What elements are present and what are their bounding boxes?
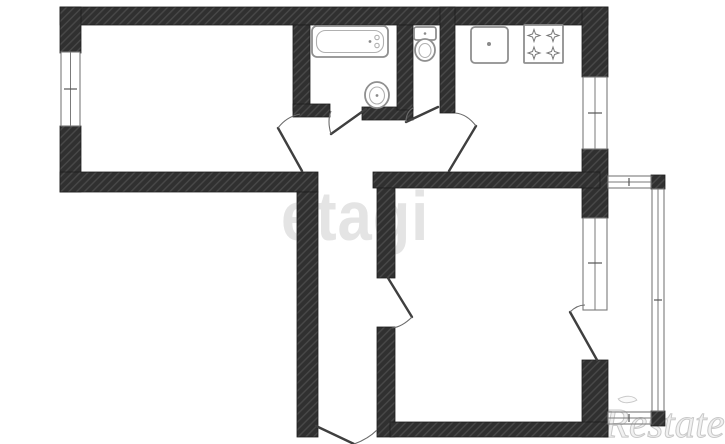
toilet-icon xyxy=(414,27,436,61)
wall-left-upper xyxy=(60,7,81,53)
door-bedroom xyxy=(388,278,412,328)
wall-wc-kitchen-divider xyxy=(440,7,455,113)
window-kitchen xyxy=(583,77,607,149)
window-bedroom xyxy=(583,218,607,310)
door-balcony xyxy=(570,305,597,360)
wall-bedroom-left-lower xyxy=(377,327,395,437)
door-living-room xyxy=(278,114,302,171)
watermark-restate-text: Restate xyxy=(604,400,725,444)
wall-bedroom-bottom xyxy=(390,422,608,437)
balcony-post-top xyxy=(651,175,665,189)
watermark-etagi: etagi xyxy=(281,176,429,256)
door-entrance xyxy=(316,426,377,444)
door-bathroom xyxy=(329,109,366,134)
window-living-room xyxy=(61,52,80,126)
floorplan-canvas: etagi Restate xyxy=(0,0,725,444)
door-kitchen xyxy=(449,113,476,171)
doors xyxy=(278,107,597,444)
balcony xyxy=(608,176,664,424)
wall-kitchen-right-upper xyxy=(582,7,608,77)
watermark-restate: Restate xyxy=(604,399,725,444)
wall-livingroom-bottom xyxy=(60,172,318,192)
wall-bath-wc-divider xyxy=(397,25,413,110)
stove-icon xyxy=(524,25,563,63)
bathtub-icon xyxy=(312,26,388,57)
balcony-rail-top xyxy=(608,176,651,188)
wash-basin-icon xyxy=(365,82,389,108)
balcony-rail-right xyxy=(652,189,664,411)
wall-livingroom-right xyxy=(293,25,310,111)
kitchen-sink-icon xyxy=(471,27,508,63)
wall-bath-left-stub xyxy=(293,104,330,117)
wall-top xyxy=(60,7,608,25)
fixtures xyxy=(312,25,563,108)
